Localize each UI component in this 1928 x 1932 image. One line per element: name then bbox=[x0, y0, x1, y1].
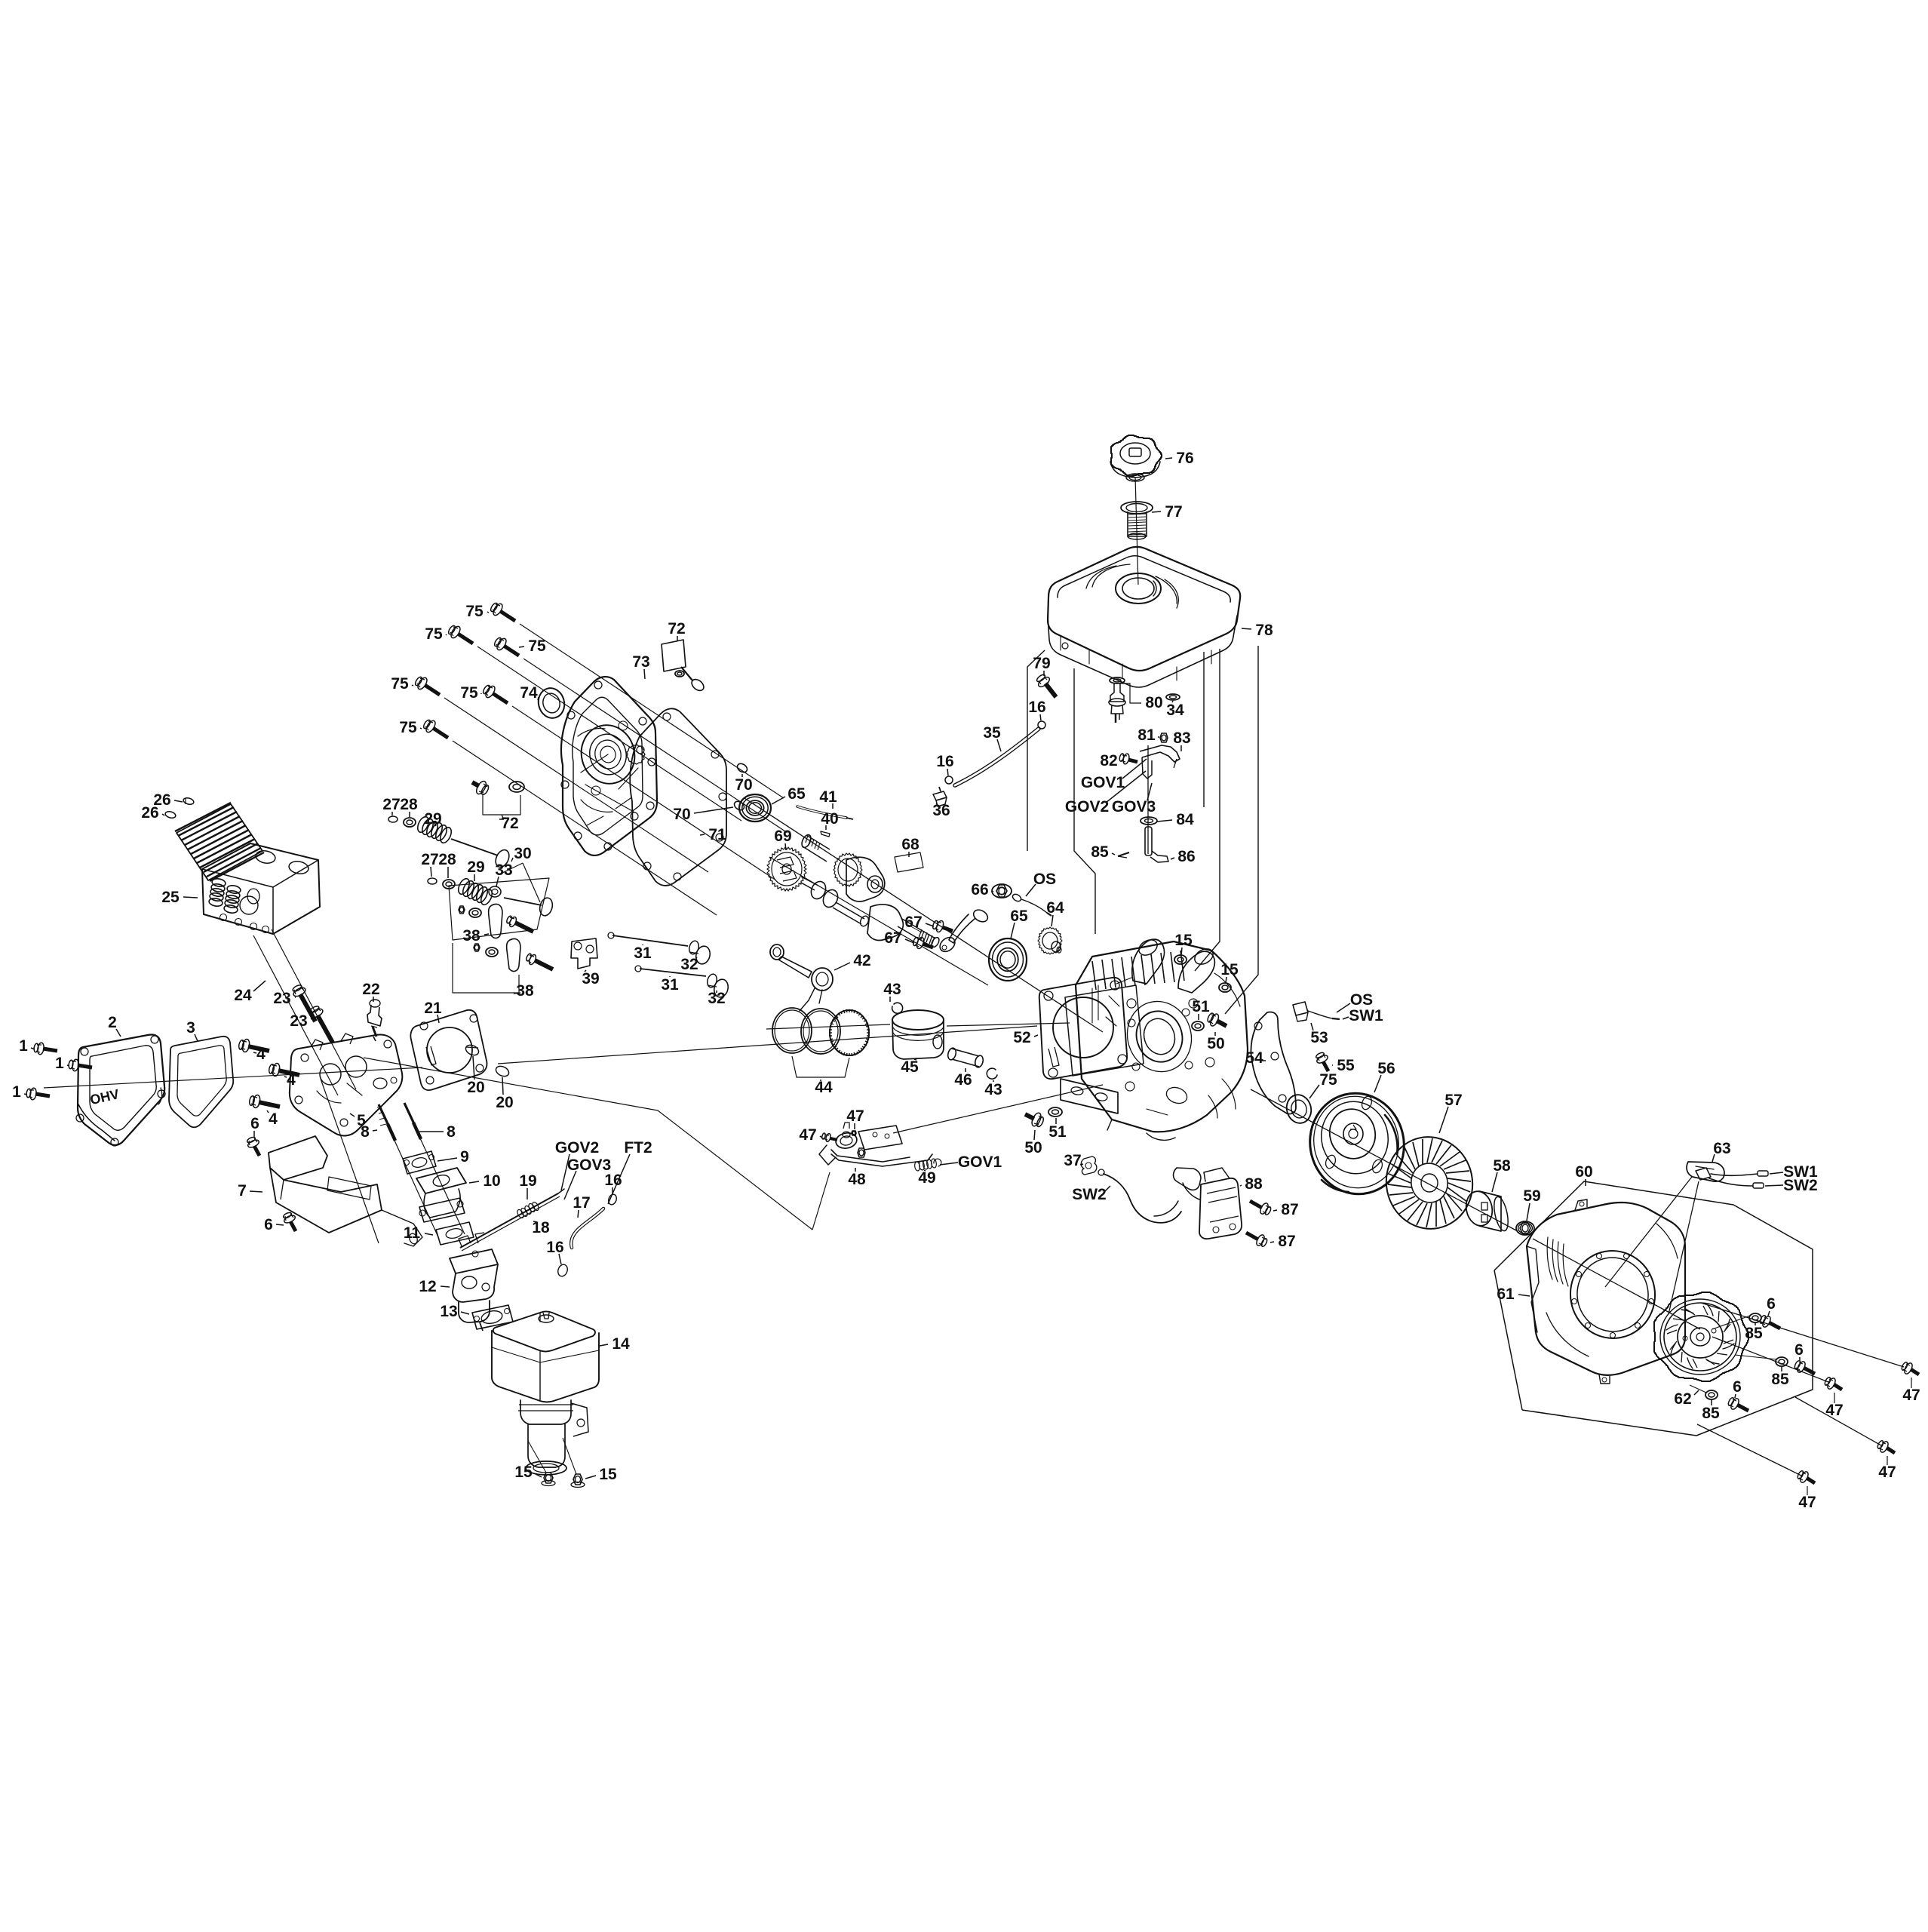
svg-text:6: 6 bbox=[1733, 1378, 1742, 1396]
svg-text:FT2: FT2 bbox=[624, 1139, 652, 1156]
svg-text:32: 32 bbox=[680, 956, 698, 973]
svg-text:16: 16 bbox=[604, 1172, 622, 1189]
svg-text:6: 6 bbox=[264, 1216, 273, 1233]
svg-text:85: 85 bbox=[1771, 1371, 1789, 1388]
svg-text:20: 20 bbox=[467, 1079, 484, 1096]
svg-text:60: 60 bbox=[1575, 1163, 1592, 1181]
svg-text:70: 70 bbox=[673, 806, 690, 823]
svg-text:GOV2: GOV2 bbox=[555, 1139, 599, 1156]
svg-text:SW2: SW2 bbox=[1072, 1186, 1107, 1203]
svg-text:15: 15 bbox=[514, 1464, 533, 1481]
svg-text:SW2: SW2 bbox=[1783, 1177, 1818, 1194]
svg-text:65: 65 bbox=[787, 785, 806, 803]
svg-text:68: 68 bbox=[901, 836, 919, 853]
svg-text:85: 85 bbox=[1702, 1405, 1720, 1422]
svg-text:22: 22 bbox=[362, 981, 379, 998]
svg-text:28: 28 bbox=[400, 796, 418, 813]
svg-text:GOV2: GOV2 bbox=[1065, 798, 1109, 815]
svg-text:15: 15 bbox=[1220, 961, 1239, 978]
svg-text:29: 29 bbox=[467, 858, 484, 876]
svg-text:48: 48 bbox=[848, 1171, 866, 1188]
svg-text:1: 1 bbox=[19, 1037, 28, 1055]
svg-text:85: 85 bbox=[1745, 1325, 1763, 1342]
svg-text:84: 84 bbox=[1176, 811, 1194, 828]
svg-text:36: 36 bbox=[932, 802, 950, 819]
svg-text:3: 3 bbox=[186, 1019, 195, 1037]
svg-text:70: 70 bbox=[735, 776, 752, 794]
svg-text:72: 72 bbox=[668, 620, 685, 637]
svg-text:35: 35 bbox=[983, 724, 1001, 742]
svg-text:62: 62 bbox=[1674, 1390, 1691, 1408]
svg-text:13: 13 bbox=[440, 1303, 457, 1320]
svg-text:SW1: SW1 bbox=[1349, 1007, 1383, 1024]
svg-text:GOV1: GOV1 bbox=[958, 1153, 1002, 1171]
svg-text:33: 33 bbox=[495, 862, 512, 879]
svg-text:75: 75 bbox=[391, 675, 409, 693]
svg-text:37: 37 bbox=[1064, 1152, 1081, 1169]
svg-text:10: 10 bbox=[483, 1172, 500, 1190]
svg-text:87: 87 bbox=[1281, 1201, 1298, 1218]
svg-text:86: 86 bbox=[1177, 848, 1195, 865]
svg-text:8: 8 bbox=[361, 1123, 370, 1141]
svg-text:4: 4 bbox=[269, 1110, 278, 1128]
svg-text:59: 59 bbox=[1523, 1187, 1540, 1205]
svg-text:9: 9 bbox=[460, 1148, 469, 1166]
svg-text:50: 50 bbox=[1024, 1139, 1042, 1156]
svg-text:20: 20 bbox=[496, 1094, 513, 1111]
svg-text:47: 47 bbox=[1902, 1387, 1920, 1404]
svg-text:23: 23 bbox=[290, 1012, 307, 1030]
svg-text:67: 67 bbox=[904, 914, 922, 931]
svg-text:14: 14 bbox=[612, 1335, 630, 1353]
svg-text:12: 12 bbox=[419, 1278, 436, 1295]
svg-text:76: 76 bbox=[1176, 450, 1193, 467]
svg-text:OS: OS bbox=[1033, 871, 1056, 888]
svg-text:1: 1 bbox=[12, 1083, 21, 1101]
svg-text:30: 30 bbox=[514, 845, 531, 862]
svg-text:49: 49 bbox=[918, 1169, 935, 1187]
svg-text:16: 16 bbox=[546, 1239, 563, 1256]
svg-text:79: 79 bbox=[1033, 655, 1050, 672]
svg-text:54: 54 bbox=[1245, 1049, 1263, 1067]
svg-text:87: 87 bbox=[1278, 1233, 1295, 1250]
svg-text:29: 29 bbox=[424, 810, 441, 828]
svg-text:81: 81 bbox=[1137, 726, 1156, 744]
svg-text:11: 11 bbox=[404, 1224, 421, 1242]
svg-text:27: 27 bbox=[421, 851, 438, 868]
svg-text:50: 50 bbox=[1207, 1035, 1224, 1052]
svg-text:OS: OS bbox=[1350, 991, 1373, 1009]
svg-text:GOV3: GOV3 bbox=[567, 1156, 611, 1174]
svg-text:80: 80 bbox=[1145, 694, 1162, 711]
svg-text:GOV1: GOV1 bbox=[1081, 774, 1125, 791]
svg-text:16: 16 bbox=[1028, 699, 1045, 716]
svg-text:21: 21 bbox=[424, 1000, 442, 1017]
svg-text:52: 52 bbox=[1013, 1029, 1030, 1046]
svg-text:15: 15 bbox=[1174, 932, 1193, 949]
svg-text:53: 53 bbox=[1310, 1029, 1328, 1046]
svg-text:75: 75 bbox=[460, 684, 478, 702]
svg-text:61: 61 bbox=[1497, 1285, 1515, 1303]
svg-text:57: 57 bbox=[1444, 1092, 1462, 1109]
svg-text:26: 26 bbox=[141, 804, 158, 822]
svg-text:63: 63 bbox=[1713, 1140, 1730, 1157]
svg-text:69: 69 bbox=[774, 828, 791, 845]
svg-text:6: 6 bbox=[250, 1115, 259, 1132]
svg-text:8: 8 bbox=[447, 1123, 456, 1141]
svg-text:34: 34 bbox=[1166, 702, 1184, 719]
svg-text:17: 17 bbox=[573, 1194, 590, 1212]
svg-text:75: 75 bbox=[1319, 1071, 1337, 1089]
svg-text:75: 75 bbox=[399, 719, 417, 736]
svg-text:24: 24 bbox=[234, 987, 252, 1004]
svg-text:47: 47 bbox=[1825, 1402, 1843, 1419]
svg-text:42: 42 bbox=[853, 952, 870, 969]
svg-text:74: 74 bbox=[520, 684, 538, 702]
svg-text:15: 15 bbox=[599, 1466, 617, 1483]
svg-text:4: 4 bbox=[287, 1071, 296, 1089]
svg-text:72: 72 bbox=[501, 815, 518, 832]
svg-text:38: 38 bbox=[516, 982, 534, 1000]
svg-text:23: 23 bbox=[273, 990, 290, 1007]
svg-text:6: 6 bbox=[1794, 1341, 1804, 1359]
svg-text:GOV3: GOV3 bbox=[1112, 798, 1156, 815]
svg-text:7: 7 bbox=[238, 1182, 247, 1199]
svg-text:4: 4 bbox=[256, 1046, 266, 1063]
svg-text:16: 16 bbox=[936, 753, 953, 770]
svg-text:43: 43 bbox=[883, 981, 901, 998]
svg-text:66: 66 bbox=[971, 881, 988, 898]
svg-text:40: 40 bbox=[821, 810, 838, 828]
svg-text:55: 55 bbox=[1337, 1057, 1355, 1074]
svg-text:2: 2 bbox=[108, 1014, 117, 1031]
svg-text:71: 71 bbox=[708, 826, 726, 843]
svg-text:77: 77 bbox=[1165, 503, 1182, 521]
svg-text:51: 51 bbox=[1048, 1123, 1067, 1141]
svg-text:46: 46 bbox=[954, 1071, 972, 1089]
svg-text:67: 67 bbox=[884, 929, 901, 947]
svg-text:47: 47 bbox=[1798, 1494, 1816, 1511]
svg-text:83: 83 bbox=[1173, 729, 1190, 747]
svg-text:31: 31 bbox=[634, 944, 652, 962]
svg-text:58: 58 bbox=[1493, 1157, 1511, 1175]
svg-text:25: 25 bbox=[161, 889, 180, 906]
svg-text:75: 75 bbox=[465, 603, 484, 620]
svg-text:1: 1 bbox=[55, 1055, 64, 1072]
svg-text:31: 31 bbox=[661, 976, 679, 994]
svg-text:56: 56 bbox=[1377, 1060, 1395, 1077]
svg-text:27: 27 bbox=[382, 796, 400, 813]
svg-text:28: 28 bbox=[438, 851, 456, 868]
svg-text:88: 88 bbox=[1245, 1175, 1263, 1193]
svg-text:82: 82 bbox=[1100, 752, 1117, 769]
svg-text:38: 38 bbox=[462, 927, 480, 944]
svg-text:45: 45 bbox=[901, 1058, 919, 1076]
svg-text:75: 75 bbox=[425, 625, 443, 643]
svg-text:47: 47 bbox=[799, 1126, 816, 1144]
svg-text:39: 39 bbox=[582, 970, 599, 988]
svg-text:43: 43 bbox=[984, 1081, 1002, 1098]
svg-text:73: 73 bbox=[632, 653, 649, 671]
svg-text:41: 41 bbox=[819, 788, 837, 806]
svg-text:85: 85 bbox=[1091, 843, 1109, 861]
svg-text:78: 78 bbox=[1255, 622, 1273, 639]
svg-text:51: 51 bbox=[1192, 998, 1210, 1015]
svg-text:47: 47 bbox=[1878, 1464, 1896, 1481]
svg-text:19: 19 bbox=[519, 1172, 536, 1190]
svg-text:47: 47 bbox=[846, 1107, 864, 1125]
svg-text:44: 44 bbox=[815, 1079, 833, 1096]
svg-text:65: 65 bbox=[1010, 908, 1028, 925]
svg-text:6: 6 bbox=[1767, 1295, 1776, 1313]
